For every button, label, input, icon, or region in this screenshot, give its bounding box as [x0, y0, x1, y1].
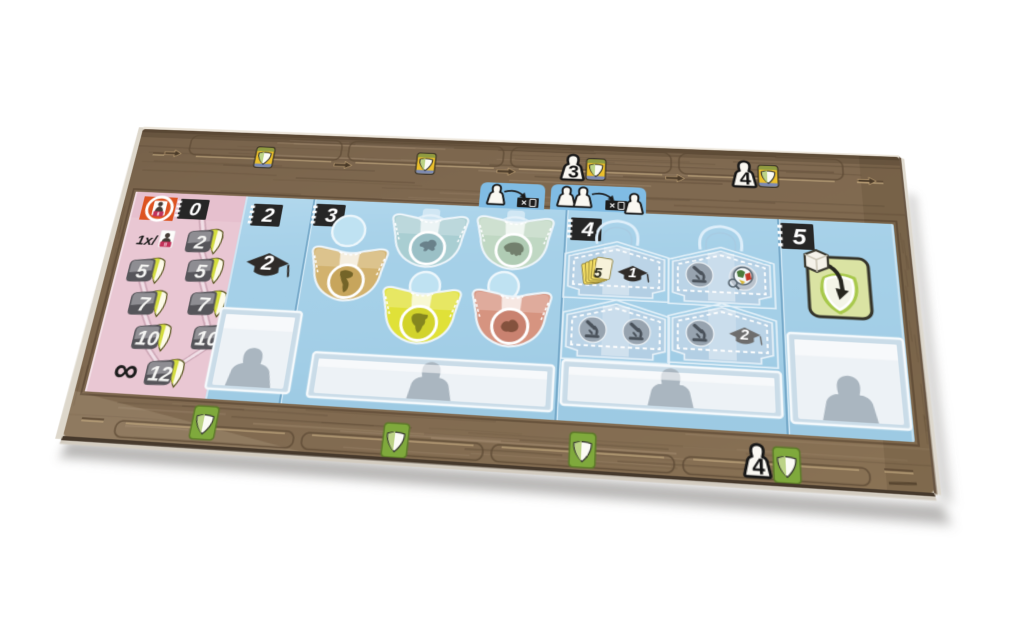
svg-text:5: 5 — [792, 225, 808, 250]
svg-text:×: × — [609, 200, 615, 211]
svg-text:×: × — [521, 197, 528, 208]
svg-text:2: 2 — [739, 326, 750, 343]
svg-text:3: 3 — [568, 162, 580, 182]
svg-text:4: 4 — [739, 169, 752, 189]
svg-text:1: 1 — [628, 265, 637, 281]
svg-text:4: 4 — [580, 217, 594, 240]
svg-text:4: 4 — [752, 454, 766, 481]
